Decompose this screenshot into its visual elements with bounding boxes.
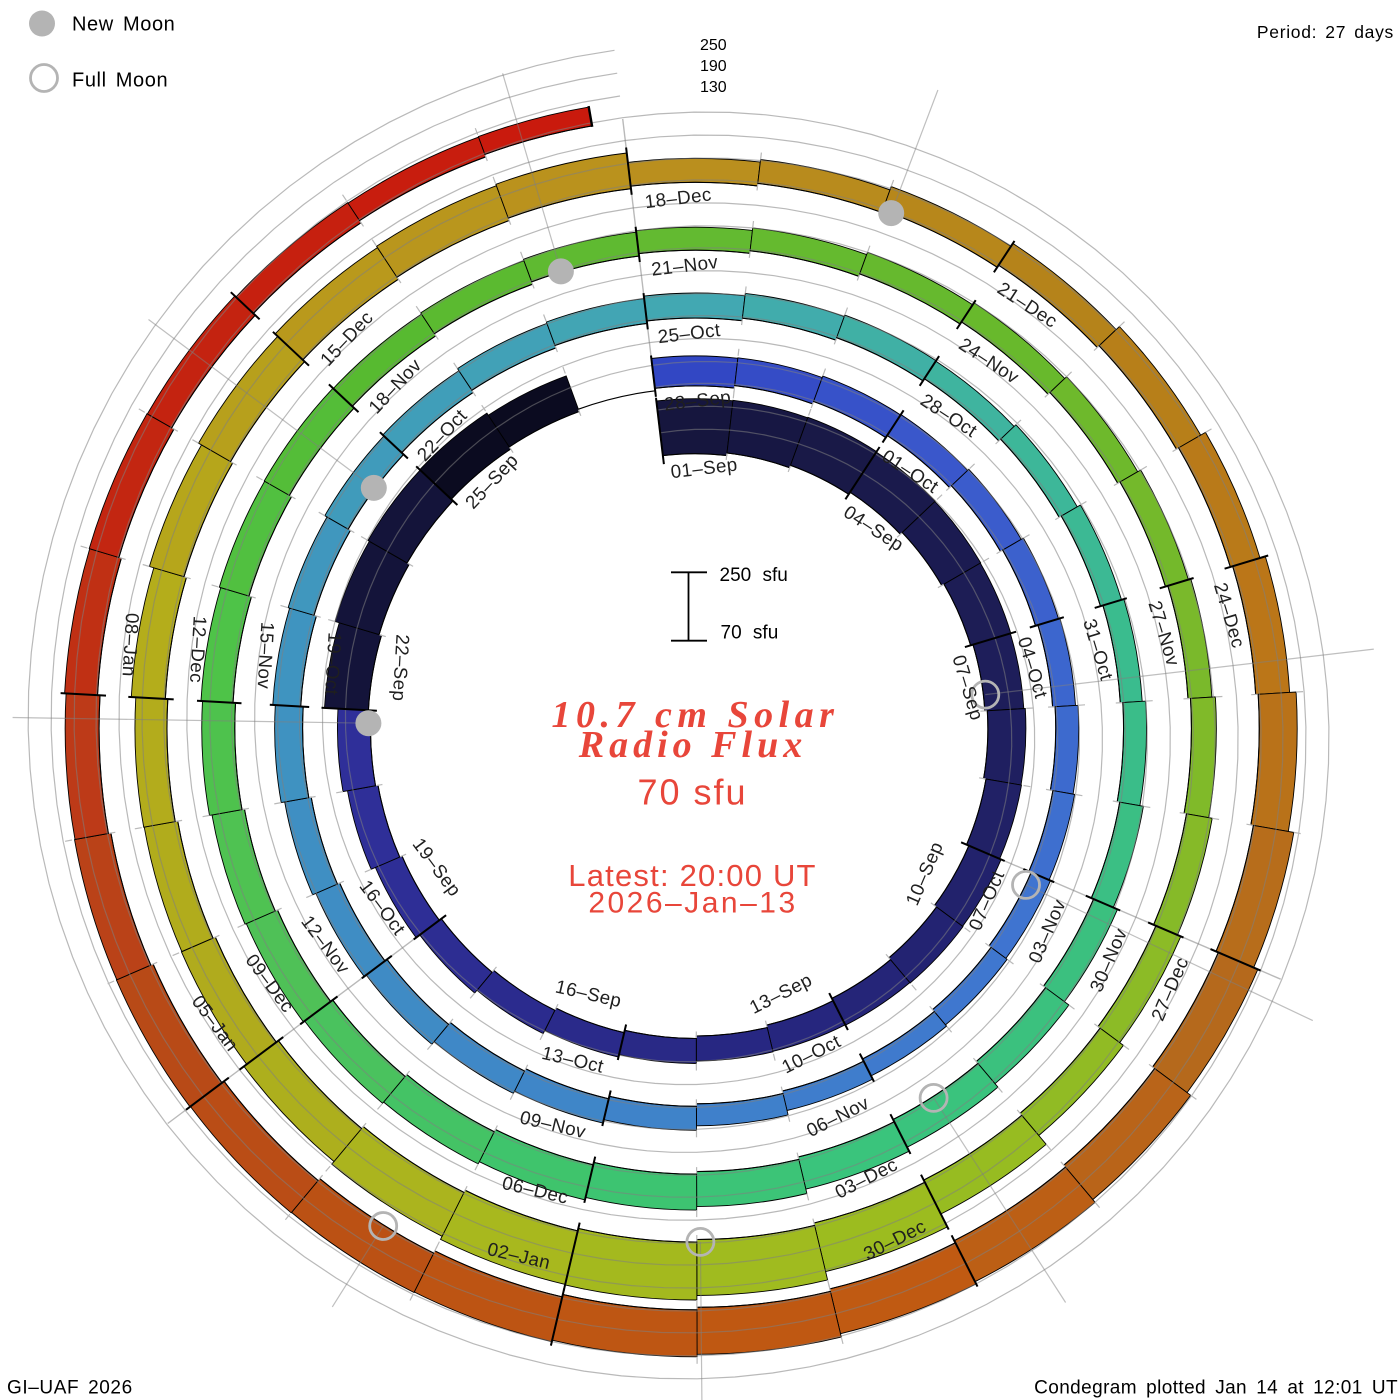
svg-text:15–Nov: 15–Nov [254,621,279,689]
svg-text:08–Jan: 08–Jan [119,612,144,677]
svg-text:70 sfu: 70 sfu [721,623,779,644]
svg-text:250 sfu: 250 sfu [720,565,788,586]
svg-text:Full Moon: Full Moon [72,70,168,92]
svg-text:130: 130 [700,79,727,96]
svg-text:190: 190 [700,58,727,75]
svg-text:19–Oct: 19–Oct [321,632,346,696]
svg-text:New Moon: New Moon [72,14,175,36]
svg-text:GI–UAF 2026: GI–UAF 2026 [7,1378,133,1399]
svg-text:Period: 27 days: Period: 27 days [1257,22,1394,42]
svg-text:Condegram plotted Jan 14 at 12: Condegram plotted Jan 14 at 12:01 UT [1034,1378,1398,1399]
svg-text:250: 250 [700,37,727,54]
svg-text:2026–Jan–13: 2026–Jan–13 [588,887,797,920]
svg-text:70 sfu: 70 sfu [637,772,747,813]
svg-text:Radio Flux: Radio Flux [578,724,807,766]
svg-text:12–Dec: 12–Dec [186,615,211,683]
svg-text:22–Sep: 22–Sep [389,634,414,702]
